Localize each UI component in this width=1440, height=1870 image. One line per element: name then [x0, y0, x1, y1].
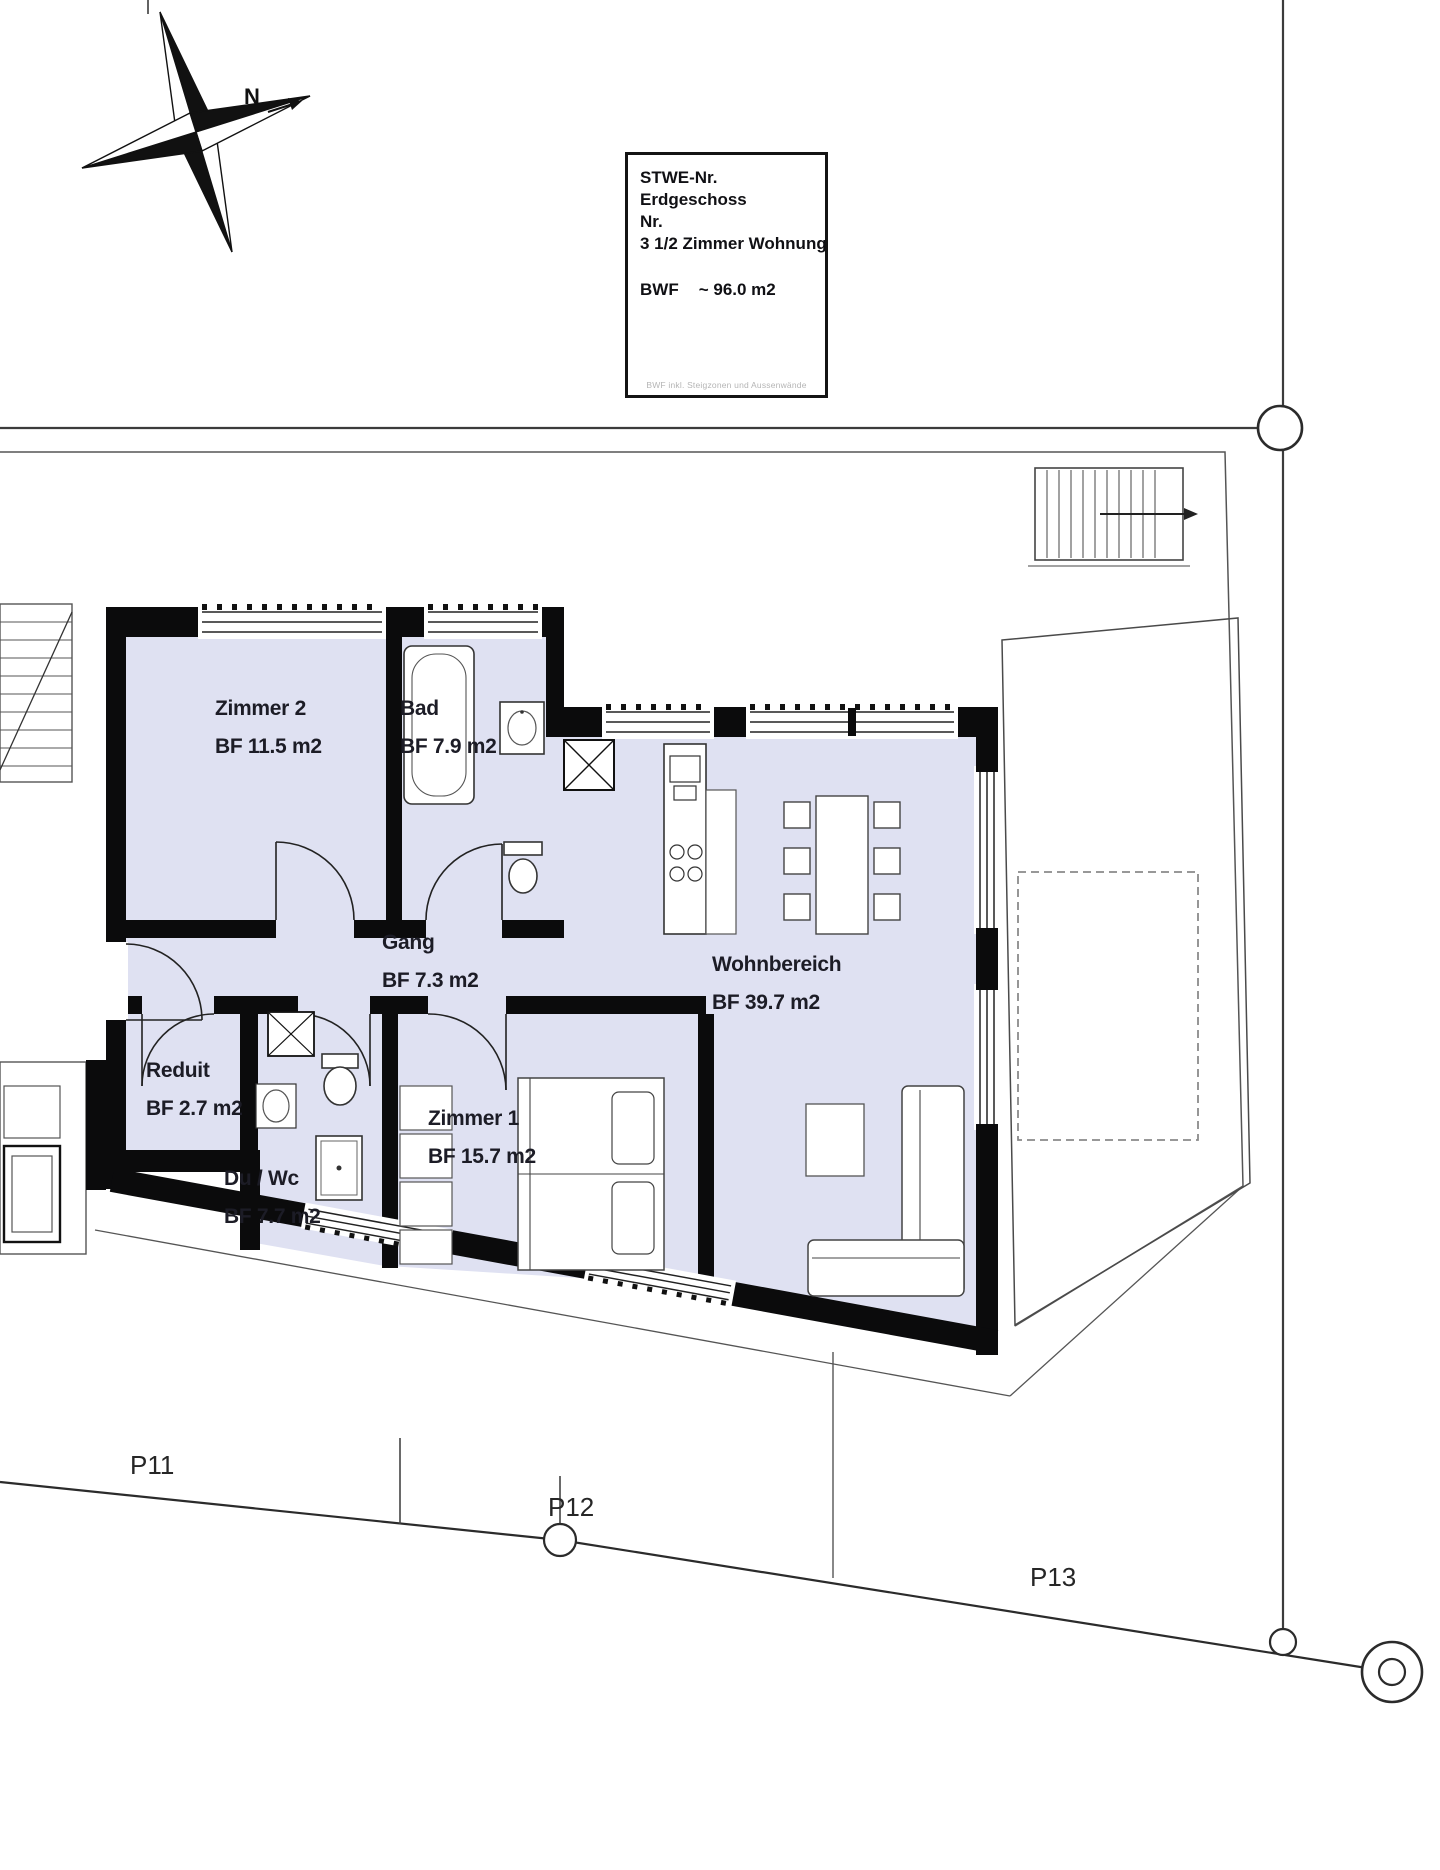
compass-rose — [82, 12, 310, 252]
room-name: Gang — [382, 924, 479, 962]
room-label-wohnbereich: Wohnbereich BF 39.7 m2 — [712, 946, 841, 1022]
title-box-bwf-row: BWF~ 96.0 m2 — [640, 279, 817, 301]
stair-direction-arrow-icon — [1184, 508, 1198, 520]
survey-marker-top — [1258, 406, 1302, 450]
parcel-boundary — [0, 1352, 1422, 1702]
title-box-nr: Nr. — [640, 211, 817, 233]
bed — [518, 1078, 664, 1270]
compass-north-label: N — [244, 84, 260, 110]
bwf-label: BWF — [640, 280, 679, 299]
kitchen-counter — [664, 744, 706, 934]
room-area: BF 39.7 m2 — [712, 984, 841, 1022]
room-name: Du / Wc — [224, 1160, 321, 1198]
elevator-block-left — [0, 1060, 106, 1254]
title-box-footnote: BWF inkl. Steigzonen und Aussenwände — [628, 380, 825, 390]
window-right-lower — [974, 984, 1000, 1130]
title-box-floor: Erdgeschoss — [640, 189, 817, 211]
parcel-label-p13: P13 — [1030, 1564, 1076, 1590]
coffee-table — [806, 1104, 864, 1176]
dining-table-set — [784, 796, 900, 934]
exterior-stair-top-right — [1028, 468, 1198, 566]
stairwell-left — [0, 604, 72, 782]
window-right-upper — [974, 766, 1000, 934]
room-label-zimmer2: Zimmer 2 BF 11.5 m2 — [215, 690, 322, 766]
shower — [316, 1136, 362, 1200]
room-label-bad: Bad BF 7.9 m2 — [400, 690, 497, 766]
room-area: BF 11.5 m2 — [215, 728, 322, 766]
room-label-gang: Gang BF 7.3 m2 — [382, 924, 479, 1000]
room-fill-zimmer2 — [116, 618, 396, 930]
room-label-reduit: Reduit BF 2.7 m2 — [146, 1052, 243, 1128]
terrace-outline — [1002, 618, 1250, 1325]
room-area: BF 7.3 m2 — [382, 962, 479, 1000]
kitchen-island — [706, 790, 736, 934]
window-kitchen — [602, 705, 714, 739]
window-bad — [424, 605, 542, 639]
duwc-toilet — [322, 1054, 358, 1105]
room-name: Zimmer 1 — [428, 1100, 536, 1138]
room-area: BF 2.7 m2 — [146, 1090, 243, 1128]
room-name: Reduit — [146, 1052, 243, 1090]
bwf-value: ~ 96.0 m2 — [699, 280, 776, 299]
bad-washbasin — [500, 702, 544, 754]
parcel-label-p11: P11 — [130, 1452, 174, 1478]
room-label-zimmer1: Zimmer 1 BF 15.7 m2 — [428, 1100, 536, 1176]
boundary-point-corner — [1270, 1629, 1296, 1655]
room-area: BF 15.7 m2 — [428, 1138, 536, 1176]
room-label-duwc: Du / Wc BF 7.7 m2 — [224, 1160, 321, 1236]
survey-marker-bottom-right — [1362, 1642, 1422, 1702]
title-box: STWE-Nr. Erdgeschoss Nr. 3 1/2 Zimmer Wo… — [625, 152, 828, 398]
window-wohnbereich — [746, 705, 958, 739]
window-zimmer2 — [198, 605, 386, 639]
terrace-dashed-area — [1018, 872, 1198, 1140]
title-box-apartment-type: 3 1/2 Zimmer Wohnung — [640, 233, 817, 255]
title-box-stwe: STWE-Nr. — [640, 167, 817, 189]
room-area: BF 7.7 m2 — [224, 1198, 321, 1236]
boundary-point-p12 — [544, 1524, 576, 1556]
room-name: Zimmer 2 — [215, 690, 322, 728]
floor-plan-canvas: N STWE-Nr. Erdgeschoss Nr. 3 1/2 Zimmer … — [0, 0, 1440, 1870]
parcel-label-p12: P12 — [548, 1494, 594, 1520]
room-area: BF 7.9 m2 — [400, 728, 497, 766]
room-name: Wohnbereich — [712, 946, 841, 984]
shaft-kitchen — [564, 740, 614, 790]
shaft-reduit — [268, 1012, 314, 1056]
duwc-washbasin — [256, 1084, 296, 1128]
room-name: Bad — [400, 690, 497, 728]
